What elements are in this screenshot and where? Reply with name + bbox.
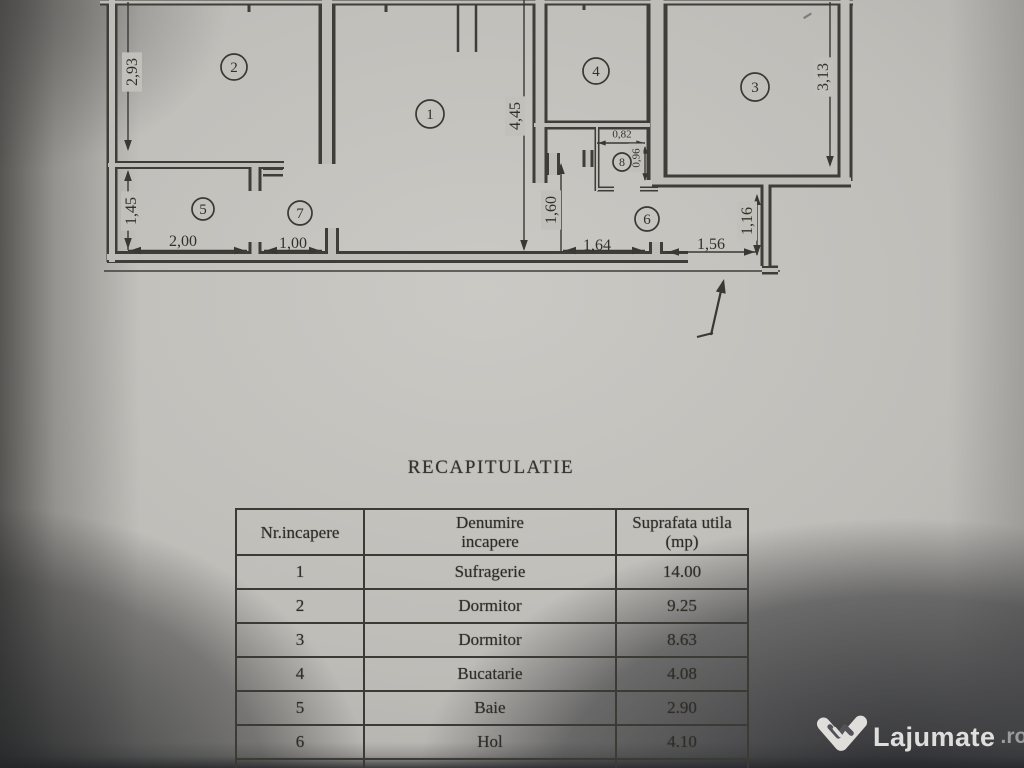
room-number-cell: 7 <box>236 759 364 768</box>
svg-text:4: 4 <box>592 64 600 80</box>
room-number-badge: 8 <box>613 153 631 171</box>
room-area-cell: 4.08 <box>616 657 748 691</box>
dimension-label: 3,13 <box>815 63 832 91</box>
room-name-cell: Dormitor <box>364 623 616 657</box>
dimension-label: 1,60 <box>543 196 560 224</box>
room-number-badge: 3 <box>741 73 769 101</box>
dimension-label: 0,96 <box>631 148 643 168</box>
room-number-badge: 6 <box>635 207 659 231</box>
room-number-badge: 5 <box>192 198 214 220</box>
room-number-cell: 1 <box>236 555 364 589</box>
room-name-cell: Baie <box>364 691 616 725</box>
dimension-label: 1,16 <box>739 207 756 235</box>
watermark-brand: Lajumate <box>873 722 996 753</box>
svg-text:5: 5 <box>199 202 207 218</box>
dimension-label: 1,00 <box>279 235 307 252</box>
room-number-badge: 4 <box>583 58 609 84</box>
table-row: 3Dormitor8.63 <box>236 623 748 657</box>
dimension-label: 1,64 <box>583 237 611 254</box>
direction-arrow <box>697 279 726 337</box>
room-name-cell: Hol <box>364 759 616 768</box>
room-area-cell: 4.10 <box>616 725 748 759</box>
dimension-labels: 2,931,452,001,004,451,601,641,561,160,82… <box>121 52 833 254</box>
svg-text:6: 6 <box>643 212 651 228</box>
svg-text:2: 2 <box>230 60 238 76</box>
room-area-cell: 14.00 <box>616 555 748 589</box>
dimension-label: 1,56 <box>697 236 725 253</box>
room-name-cell: Dormitor <box>364 589 616 623</box>
lajumate-watermark: Lajumate.ro <box>816 714 1024 760</box>
table-row: 1Sufragerie14.00 <box>236 555 748 589</box>
table-row: 5Baie2.90 <box>236 691 748 725</box>
col-header-number: Nr.incapere <box>236 509 364 555</box>
floor-plan: 2,931,452,001,004,451,601,641,561,160,82… <box>0 0 1024 420</box>
dimension-label: 1,45 <box>123 197 140 225</box>
room-area-cell: 8.63 <box>616 623 748 657</box>
watermark-tld: .ro <box>1001 725 1024 749</box>
room-number-badge: 2 <box>221 54 247 80</box>
summary-title: RECAPITULATIE <box>235 457 747 479</box>
table-row: 2Dormitor9.25 <box>236 589 748 623</box>
lajumate-heart-icon <box>816 714 868 760</box>
svg-text:3: 3 <box>751 80 759 96</box>
room-number-cell: 4 <box>236 657 364 691</box>
dimension-label: 2,00 <box>169 233 197 250</box>
col-header-name: Denumireincapere <box>364 509 616 555</box>
room-number-cell: 2 <box>236 589 364 623</box>
table-row: 7Hol1.42 <box>236 759 748 768</box>
room-name-cell: Bucatarie <box>364 657 616 691</box>
dimension-label: 4,45 <box>507 102 524 130</box>
room-area-cell: 1.42 <box>616 759 748 768</box>
svg-text:7: 7 <box>296 206 304 222</box>
room-area-cell: 9.25 <box>616 589 748 623</box>
scanned-floor-plan-page: 2,931,452,001,004,451,601,641,561,160,82… <box>0 0 1024 768</box>
room-number-cell: 6 <box>236 725 364 759</box>
col-header-area: Suprafata utila(mp) <box>616 509 748 555</box>
room-number-badge: 1 <box>416 100 444 128</box>
room-number-badges: 12345678 <box>192 54 769 231</box>
summary-table: Nr.incapere Denumireincapere Suprafata u… <box>235 508 749 768</box>
svg-text:8: 8 <box>619 155 625 169</box>
svg-text:1: 1 <box>426 107 434 123</box>
room-number-cell: 5 <box>236 691 364 725</box>
room-area-cell: 2.90 <box>616 691 748 725</box>
table-row: 4Bucatarie4.08 <box>236 657 748 691</box>
summary-header-row: Nr.incapere Denumireincapere Suprafata u… <box>236 509 748 555</box>
room-number-badge: 7 <box>288 201 312 225</box>
room-number-cell: 3 <box>236 623 364 657</box>
dimension-lines <box>124 0 834 256</box>
dimension-label: 2,93 <box>124 58 141 86</box>
room-name-cell: Hol <box>364 725 616 759</box>
room-name-cell: Sufragerie <box>364 555 616 589</box>
table-row: 6Hol4.10 <box>236 725 748 759</box>
dimension-label: 0,82 <box>612 129 631 141</box>
summary-body: 1Sufragerie14.002Dormitor9.253Dormitor8.… <box>236 555 748 768</box>
